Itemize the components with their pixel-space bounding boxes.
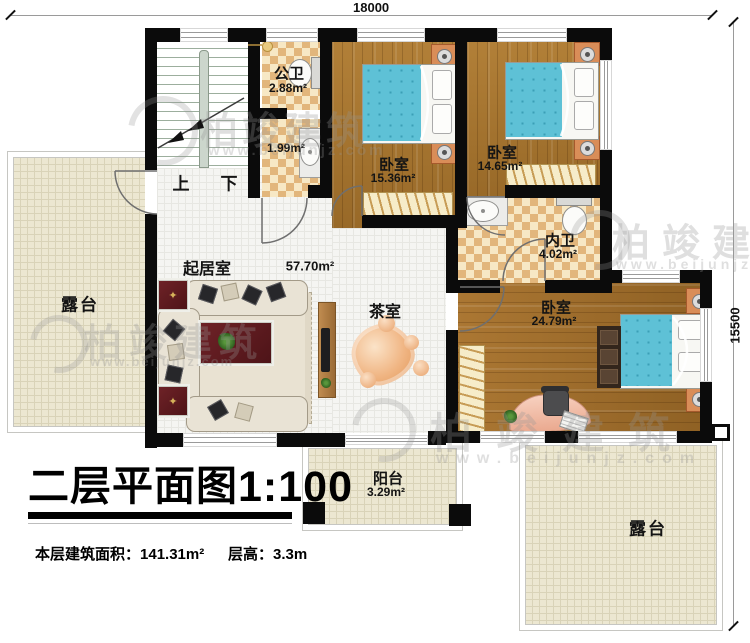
balcony-window bbox=[345, 435, 428, 445]
wall bbox=[428, 431, 446, 445]
bed-pillow bbox=[574, 68, 594, 97]
public-bath-area: 2.88m² bbox=[269, 81, 307, 95]
tv-cabinet-plant bbox=[321, 378, 331, 388]
floor-height-value: 3.3m bbox=[273, 546, 307, 563]
washroom-area: 1.99m² bbox=[267, 141, 305, 155]
wall bbox=[320, 28, 332, 198]
stairs-up-label: 上 bbox=[173, 170, 192, 195]
tea-stool bbox=[404, 335, 419, 350]
window bbox=[480, 431, 545, 443]
side-table: ✦ bbox=[158, 280, 188, 310]
window bbox=[622, 270, 680, 283]
wardrobe bbox=[363, 192, 453, 216]
side-table: ✦ bbox=[158, 386, 188, 416]
window bbox=[497, 28, 567, 42]
dimension-line-top bbox=[10, 15, 713, 16]
title-underline bbox=[28, 512, 292, 519]
plan-scale: 1:100 bbox=[238, 463, 353, 512]
terrace-right-label: 露台 bbox=[629, 515, 667, 540]
stairs-down-label: 下 bbox=[221, 170, 240, 195]
desk-plant bbox=[504, 410, 517, 423]
bed-pillow bbox=[432, 70, 452, 100]
bed-pillow bbox=[574, 101, 594, 130]
window bbox=[600, 60, 612, 150]
coffee-table-plant bbox=[218, 333, 235, 350]
wash-basin bbox=[467, 200, 499, 222]
balcony-pillar bbox=[303, 502, 325, 524]
wall bbox=[458, 185, 465, 198]
floor-area-label: 本层建筑面积： bbox=[35, 546, 140, 563]
door-opening bbox=[145, 170, 157, 214]
wardrobe bbox=[459, 345, 485, 433]
window bbox=[578, 431, 677, 443]
bed-quilt bbox=[621, 315, 672, 386]
bed-foot-cabinet bbox=[597, 326, 621, 388]
wall bbox=[260, 108, 287, 119]
wall bbox=[446, 330, 458, 433]
window bbox=[266, 28, 318, 42]
bedroom1-area: 15.36m² bbox=[371, 171, 416, 185]
wall bbox=[446, 228, 458, 285]
sofa-pillow bbox=[165, 365, 184, 384]
floor-area-note: 本层建筑面积：141.31m² bbox=[35, 543, 204, 564]
sofa-pillow bbox=[221, 283, 240, 302]
tea-room-label: 茶室 bbox=[369, 298, 401, 322]
window bbox=[357, 28, 425, 42]
window bbox=[180, 28, 228, 42]
stair-stringer bbox=[199, 50, 209, 168]
window bbox=[700, 308, 712, 382]
bedroom2-area: 14.65m² bbox=[478, 159, 523, 173]
wall bbox=[248, 28, 260, 198]
balcony-pillar bbox=[449, 504, 471, 526]
watermark-brand: 柏竣建筑 bbox=[612, 212, 750, 267]
bed-pillow bbox=[432, 104, 452, 134]
wall bbox=[145, 28, 157, 448]
sofa-pillow bbox=[167, 343, 185, 361]
living-room-label: 起居室 bbox=[183, 255, 231, 279]
wall bbox=[505, 185, 612, 198]
tea-stool bbox=[413, 360, 429, 376]
window bbox=[183, 433, 277, 447]
corner-column bbox=[712, 424, 730, 441]
terrace-left-label: 露台 bbox=[61, 291, 99, 316]
tv-screen bbox=[321, 328, 330, 372]
bedroom3-area: 24.79m² bbox=[532, 314, 577, 328]
plan-title-text: 二层平面图 bbox=[28, 452, 238, 512]
dimension-height: 15500 bbox=[728, 307, 743, 343]
floor-plan: 18000 15500 露台 露台 阳台 3.29m² 上 下 ✦ ✦ bbox=[0, 0, 750, 643]
floor-height-label: 层高： bbox=[228, 546, 273, 563]
wall bbox=[362, 215, 458, 228]
terrace-right bbox=[520, 440, 722, 630]
living-room-area: 57.70m² bbox=[286, 259, 334, 274]
balcony-area: 3.29m² bbox=[367, 485, 405, 499]
wall bbox=[308, 185, 332, 198]
inner-bath-area: 4.02m² bbox=[539, 247, 577, 261]
title-underline-thin bbox=[28, 523, 292, 524]
tea-stool bbox=[360, 372, 376, 388]
bed-quilt bbox=[506, 63, 562, 137]
coffee-table bbox=[200, 322, 272, 364]
dimension-width: 18000 bbox=[353, 0, 389, 15]
light-symbol bbox=[262, 41, 273, 52]
wall bbox=[455, 28, 467, 228]
floor-height-note: 层高：3.3m bbox=[228, 543, 307, 564]
floor-area-value: 141.31m² bbox=[140, 546, 204, 563]
bed-quilt bbox=[363, 65, 421, 141]
